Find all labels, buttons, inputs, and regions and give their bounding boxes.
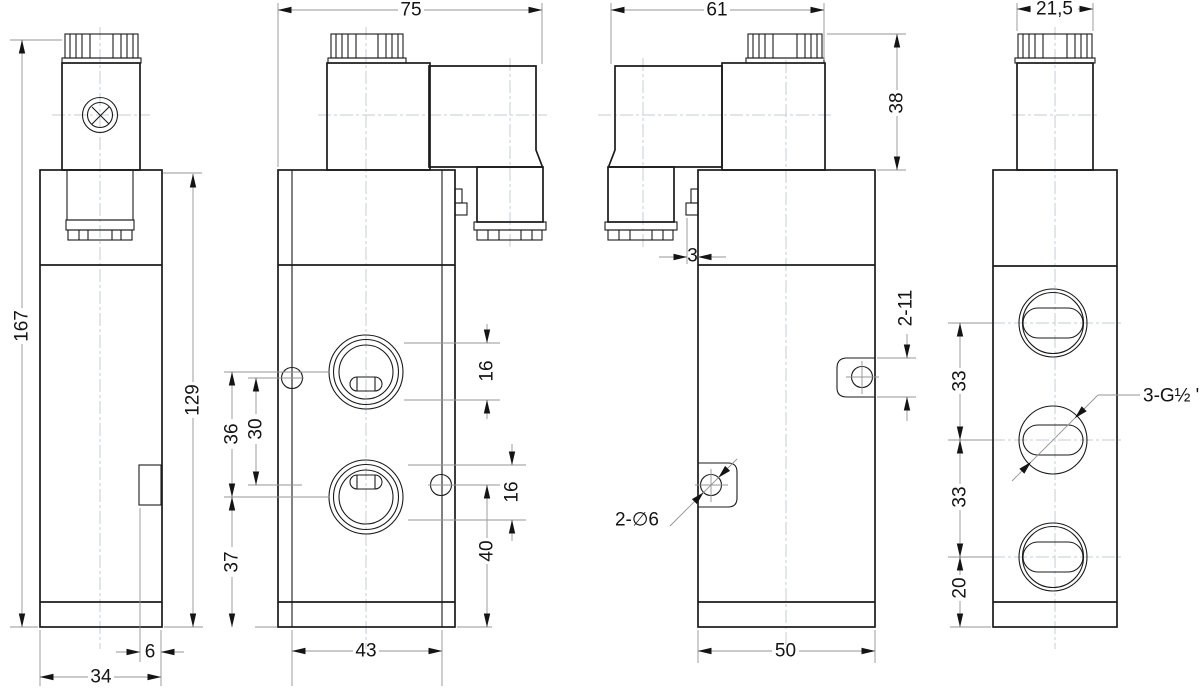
mounting-lug-left <box>695 463 737 507</box>
dimension-labels: 167 129 34 6 75 36 30 37 16 16 40 43 61 … <box>12 0 1200 688</box>
solenoid-cap <box>328 34 406 63</box>
solenoid-cap <box>62 34 141 63</box>
dim-lug-holes: 2-∅6 <box>615 510 659 531</box>
cover-screw <box>83 98 118 133</box>
valve-body-side <box>40 170 162 627</box>
dim-bore-bottom: 16 <box>502 481 523 502</box>
leader-thread-callout <box>1012 395 1140 481</box>
din-connector <box>609 66 723 167</box>
dim-cap-width: 21,5 <box>1036 0 1073 20</box>
dim-bore-top: 16 <box>477 360 498 381</box>
dim-lug-length: 2-11 <box>896 290 917 327</box>
dim-port-pitch: 36 <box>222 423 243 444</box>
valve-dimensional-drawing: 167 129 34 6 75 36 30 37 16 16 40 43 61 … <box>0 0 1200 689</box>
dim-port-pitch-lower: 33 <box>950 486 971 507</box>
dim-overall-width-front: 75 <box>400 0 421 21</box>
dim-hole-to-base: 40 <box>477 540 498 561</box>
dim-thread-callout: 3-G½ " <box>1143 386 1200 407</box>
side-view <box>40 34 162 627</box>
dim-body-height: 129 <box>183 384 204 416</box>
solenoid-coil <box>722 63 825 170</box>
dim-port-to-base-right: 20 <box>950 577 971 598</box>
drawing-canvas: 167 129 34 6 75 36 30 37 16 16 40 43 61 … <box>0 0 1200 689</box>
cable-gland <box>605 167 677 240</box>
dim-overall-width-back: 61 <box>706 0 727 21</box>
dim-body-width: 50 <box>775 641 796 662</box>
mounting-bracket-clip <box>455 189 467 215</box>
centerlines <box>52 27 1122 649</box>
dimension-lines <box>22 9 1093 677</box>
mounting-lug-side <box>139 465 161 505</box>
extension-lines <box>10 3 1093 686</box>
cap-knurling <box>753 34 817 58</box>
dim-bracket-thickness: 3 <box>687 246 698 267</box>
mounting-lug-right <box>837 358 879 397</box>
dim-hole-pitch: 30 <box>246 418 267 439</box>
cap-knurling <box>336 34 398 58</box>
dim-port-pitch-upper: 33 <box>950 370 971 391</box>
back-view <box>605 34 879 627</box>
din-connector <box>429 66 543 167</box>
solenoid-coil <box>327 63 430 170</box>
front-view <box>278 34 546 627</box>
dim-solenoid-height: 38 <box>887 92 908 113</box>
dim-total-height: 167 <box>12 310 33 342</box>
dim-port-to-base-front: 37 <box>222 551 243 572</box>
dim-depth: 34 <box>90 667 112 688</box>
dim-lug-depth: 6 <box>145 642 156 663</box>
solenoid-cap <box>746 34 824 63</box>
mounting-bracket-clip <box>686 189 698 215</box>
leader-lug-holes <box>670 459 737 526</box>
cap-knurling <box>70 34 133 58</box>
dim-hole-span: 43 <box>355 641 376 662</box>
